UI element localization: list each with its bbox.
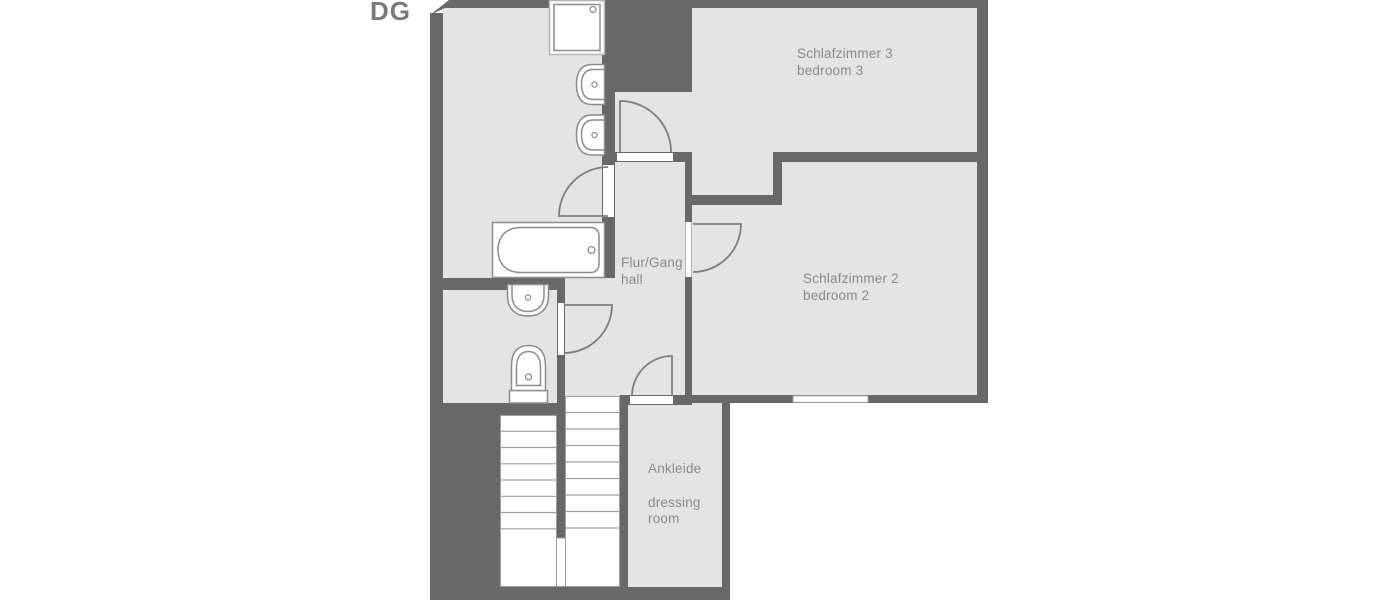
room-name-de: Flur/Gang (621, 255, 683, 272)
toilet-fixture (510, 346, 548, 404)
room-label-dressing-room: Ankleide dressing room (648, 461, 712, 528)
room-name-en: dressing room (648, 495, 712, 528)
door-swing-dressing-room (632, 356, 672, 396)
stair-flight-right (566, 397, 620, 587)
door-opening-dressing-room (630, 396, 673, 404)
door-swing-bedroom2 (693, 224, 741, 272)
door-swing-bedroom3 (620, 101, 671, 152)
room-name-de: Schlafzimmer 3 (797, 46, 893, 63)
room-name-de: Schlafzimmer 2 (803, 271, 899, 288)
room-name-en: bedroom 2 (803, 288, 899, 305)
floor-plan: DG Schlafzimmer 3 bedroom 3 Schlafzimmer… (0, 0, 1400, 600)
shower-fixture (550, 1, 605, 55)
washbasin-1-fixture (577, 65, 605, 105)
room-name-en: hall (621, 272, 683, 289)
room-label-bedroom3: Schlafzimmer 3 bedroom 3 (797, 46, 893, 79)
stair-flight-left (501, 416, 557, 587)
room-label-hall: Flur/Gang hall (621, 255, 683, 288)
bathtub-fixture (493, 223, 605, 278)
room-label-bedroom2: Schlafzimmer 2 bedroom 2 (803, 271, 899, 304)
door-opening-wc (558, 303, 564, 355)
wall-corner-chamfer (430, 0, 463, 15)
wc-washbasin-fixture (508, 285, 549, 317)
room-name-de: Ankleide (648, 461, 712, 478)
door-opening-bathroom (603, 165, 614, 217)
door-swing-bathroom (559, 167, 608, 216)
room-name-en: bedroom 3 (797, 63, 893, 80)
floor-label: DG (370, 0, 411, 27)
door-swing-wc (564, 305, 612, 353)
door-opening-bedroom2 (686, 222, 692, 277)
staircase (501, 397, 620, 587)
window-opening-bedroom2 (793, 396, 868, 403)
door-opening-bedroom3 (617, 153, 673, 161)
washbasin-2-fixture (577, 115, 605, 155)
